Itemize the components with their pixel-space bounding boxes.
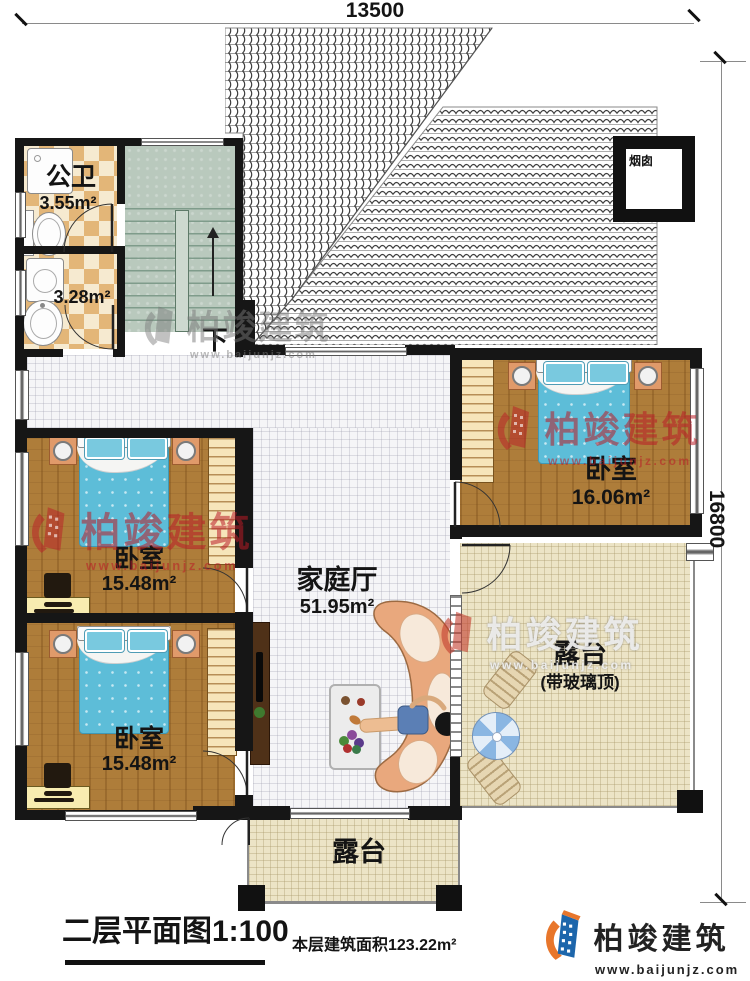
door-bedroom-mid — [203, 568, 248, 613]
wall-bedrooms-east — [235, 612, 253, 751]
window-terrace-west — [450, 595, 462, 757]
wall-bath-stair-divider — [117, 138, 125, 204]
window-stair-north — [141, 138, 224, 146]
bedroom-mid-area: 15.48m² — [80, 574, 198, 595]
parasol-pole-icon — [492, 732, 502, 742]
bedroom-right-area: 16.06m² — [546, 487, 676, 509]
stair-down-label: 下 — [194, 327, 236, 354]
stair-arrow-head — [207, 227, 219, 238]
company-name: 柏竣建筑 — [593, 923, 729, 956]
wall-hall-south — [408, 806, 462, 820]
terrace-right-name: 露台 — [527, 640, 633, 668]
title-underline — [65, 960, 265, 965]
door-terrace-right — [462, 545, 511, 594]
wall-bedroom-mid-north — [25, 428, 253, 438]
dimension-tick — [687, 9, 700, 22]
plant-icon — [254, 707, 265, 718]
window-bedroom-mid-west — [15, 452, 29, 546]
family-hall-area: 51.95m² — [282, 597, 392, 618]
terrace-column — [436, 885, 462, 911]
nightstand — [49, 630, 77, 658]
bath-area: 3.55m² — [28, 194, 108, 213]
desk-item — [34, 798, 74, 802]
bed-pillow — [128, 437, 168, 459]
tv — [256, 652, 263, 702]
bedroom-right-name: 卧室 — [556, 456, 666, 483]
nightstand — [634, 362, 662, 390]
sofa-with-person — [352, 596, 466, 798]
wall-bedroom-right-north — [450, 348, 702, 360]
wall-laundry-south — [15, 349, 63, 357]
bedroom-bottom-area: 15.48m² — [80, 754, 198, 775]
bed-pillow — [588, 362, 628, 384]
cup-icon — [341, 696, 350, 705]
dimension-line-top — [22, 23, 694, 24]
nightstand — [49, 437, 77, 465]
roof-tiles — [225, 26, 658, 345]
door-bedroom-bottom — [203, 751, 248, 796]
door-bedroom-right — [455, 482, 501, 528]
window-bedroom-right-east — [690, 368, 704, 514]
wall-terrace-west — [450, 755, 460, 808]
window-bedroom-bottom-west — [15, 652, 29, 746]
nightstand — [172, 437, 200, 465]
dresser — [44, 573, 71, 598]
window-bath-west — [15, 192, 26, 238]
wall-west-outer — [15, 357, 27, 820]
chimney-label: 烟囱 — [615, 155, 667, 168]
bed — [77, 433, 171, 547]
sink-basin — [30, 308, 57, 339]
lamp-icon — [176, 441, 196, 461]
stair-handrail — [175, 210, 189, 332]
terrace-column — [238, 885, 265, 911]
desk-item — [44, 602, 72, 607]
terrace-right-south-edge — [460, 806, 692, 808]
terrace-bottom-south-edge — [247, 901, 460, 904]
bed-pillow — [85, 437, 125, 459]
wall-stair-east-nub — [243, 300, 255, 349]
plan-title: 二层平面图1:100 — [62, 916, 289, 948]
floor-plan-canvas: 13500 16800 烟囱 — [0, 0, 750, 981]
lamp-icon — [638, 366, 658, 386]
floor-area-note: 本层建筑面积123.22m² — [292, 938, 457, 955]
terrace-column — [677, 790, 703, 813]
company-url: www.baijunjz.com — [595, 962, 739, 977]
person-clothes — [398, 706, 428, 734]
window-laundry-west — [15, 270, 26, 316]
wall-bedroom-divider — [25, 613, 253, 623]
dimension-tick — [14, 13, 27, 26]
bed-pillow — [85, 630, 125, 652]
nightstand — [172, 630, 200, 658]
lamp-icon — [176, 634, 196, 654]
bed — [536, 358, 632, 464]
dimension-tick — [713, 51, 726, 64]
window-bedroom-bottom-south — [65, 811, 197, 821]
company-logo-icon — [543, 908, 589, 964]
stair-arrow-shaft — [212, 238, 214, 296]
company-logo: 柏竣建筑 www.baijunjz.com — [543, 908, 739, 977]
shower-drain-icon — [34, 155, 41, 162]
lamp-icon — [512, 366, 532, 386]
parasol-table — [472, 712, 520, 760]
family-hall-floor — [27, 355, 450, 428]
lamp-icon — [53, 441, 73, 461]
wall-bedroom-right-west — [450, 348, 462, 480]
bed — [77, 626, 171, 734]
sliding-door-hall-south — [290, 808, 410, 819]
wall-stair-east — [235, 138, 243, 357]
family-hall-name: 家庭厅 — [276, 566, 398, 594]
door-laundry — [65, 305, 115, 351]
dimension-right-value: 16800 — [705, 474, 727, 564]
desk — [25, 786, 90, 809]
bed-pillow — [128, 630, 168, 652]
window-hall-west — [15, 370, 29, 420]
laundry-area: 3.28m² — [42, 288, 122, 307]
chimney: 烟囱 — [613, 136, 695, 222]
wardrobe — [461, 357, 494, 483]
nightstand — [508, 362, 536, 390]
bed-pillow — [544, 362, 584, 384]
window-hall-north — [285, 347, 407, 356]
bedroom-bottom-name: 卧室 — [84, 726, 194, 752]
wall-hall-north — [405, 345, 455, 355]
wardrobe — [207, 628, 237, 756]
wall-bedrooms-east — [235, 428, 253, 568]
lamp-icon — [53, 634, 73, 654]
dimension-top-value: 13500 — [320, 0, 430, 22]
terrace-bottom-name: 露台 — [316, 838, 402, 866]
chair — [44, 763, 71, 788]
wardrobe — [208, 437, 238, 565]
bedroom-mid-name: 卧室 — [84, 546, 194, 572]
bath-name: 公卫 — [36, 164, 106, 190]
terrace-right-sub: (带玻璃顶) — [507, 674, 653, 692]
terrace-right-east-edge — [693, 543, 695, 806]
door-terrace-bottom — [222, 818, 250, 846]
desk-item — [44, 791, 72, 796]
